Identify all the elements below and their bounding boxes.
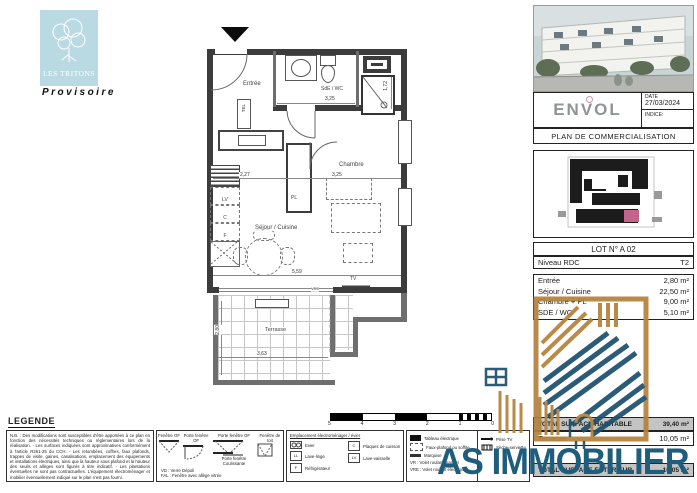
legend-notes-box: N.B. : Des modifications sont susceptibl…	[6, 430, 154, 482]
room-sejour: Séjour / Cuisine	[255, 225, 297, 231]
faux-plafond-icon	[410, 443, 423, 451]
room-chambre: Chambre	[339, 162, 364, 168]
terrace-wall-ext-h	[353, 317, 407, 322]
legend-windows-box: Fenêtre OF Porte fenêtre OF Porte fenêtr…	[156, 430, 284, 482]
terrace-wall-bottom	[213, 380, 335, 385]
terrace-wall-left	[213, 295, 218, 385]
tel-label: TEL	[241, 104, 246, 112]
highlighted-lot	[624, 210, 639, 222]
oven-block	[210, 165, 240, 187]
washbasin	[285, 55, 317, 81]
dimline-sde	[277, 103, 355, 104]
site-plan	[533, 150, 694, 238]
plaques-cuisson-icon: C	[348, 441, 360, 451]
les-tritons-logo: LES TRITONS	[40, 10, 98, 86]
wall-bottom-right	[333, 287, 407, 293]
terrace-door-tag	[255, 299, 289, 308]
lave-vaisselle-icon: LV	[348, 453, 360, 463]
dim-sde-d: 1,72	[382, 81, 390, 91]
cooktop-box: C	[210, 205, 240, 223]
building-photo	[533, 5, 694, 92]
evier-icon	[290, 441, 302, 449]
fridge-box: F	[210, 223, 240, 241]
date-label: DATE	[642, 93, 693, 100]
room-sde: SdE / WC	[321, 86, 343, 92]
dimline-sde-d	[391, 77, 392, 109]
scale-numbers: 54 32 10	[328, 421, 494, 427]
dimline-terrasse	[218, 357, 328, 358]
wall-right	[401, 49, 407, 293]
tableau-electrique-icon	[410, 435, 421, 441]
floor-plan: TEL LV C F PL TV VRE Entrée SdE / WC Cha…	[193, 25, 423, 423]
fenetre-de-toit-icon	[257, 443, 273, 459]
wardrobe-dashed	[326, 178, 372, 200]
kitchen-counter	[218, 130, 284, 151]
vre-label: VRE	[311, 286, 319, 292]
as-immobilier-logo	[480, 293, 652, 451]
envol-bird-icon	[586, 96, 593, 103]
room-entree: Entrée	[243, 81, 261, 87]
dimline-terrasse-d	[221, 301, 222, 375]
title-block: ENVOL DATE 27/03/2024 INDICE:	[533, 92, 694, 128]
marquise-icon	[410, 454, 421, 457]
terrace-wall-ext-v	[401, 293, 407, 322]
chair-right	[280, 247, 295, 265]
window-right-1	[398, 120, 412, 164]
wall-bottom-left	[207, 287, 219, 293]
legend-nb-text: N.B. : Des modifications sont susceptibl…	[7, 431, 153, 482]
terrace-wall-right	[330, 295, 335, 357]
as-immobilier-watermark-text: AS IMMOBILIER 7	[437, 441, 697, 483]
surface-row: Entrée2,80 m²	[534, 276, 693, 287]
furniture-dashed	[343, 243, 373, 263]
indice-label: INDICE:	[642, 110, 693, 120]
tv-label: TV	[350, 276, 356, 282]
dimline-mid	[213, 178, 401, 179]
lave-linge-icon: LL	[290, 451, 302, 461]
type-label: T2	[680, 258, 689, 267]
porte-fenetre-of-icon	[181, 443, 205, 461]
partition-bath-shower	[356, 51, 359, 107]
dim-terrasse-w: 3,63	[256, 351, 268, 357]
tree-icon	[40, 10, 98, 68]
closet-label: PL	[291, 195, 297, 201]
dim-sejour-w: 5,59	[291, 269, 303, 275]
partition-entree-bath	[273, 51, 276, 107]
dim-terrasse-d: 2,80	[214, 325, 222, 335]
dim-chambre-w: 3,25	[331, 172, 343, 178]
lot-number-row: LOT N° A 02	[533, 242, 694, 256]
dim-sde-w: 3,25	[324, 96, 336, 102]
date-value: 27/03/2024	[642, 100, 693, 110]
dimline-sejour	[213, 275, 401, 276]
table-dashed	[245, 238, 283, 276]
room-terrasse: Terrasse	[265, 327, 286, 333]
wc-bowl	[321, 65, 335, 83]
dishwasher-box: LV	[210, 187, 240, 205]
fenetre-of-icon	[157, 438, 181, 454]
level-row: Niveau RDC T2	[533, 256, 694, 269]
tel-box: TEL	[237, 99, 251, 129]
refrigerateur-icon: F	[290, 463, 302, 473]
terrace-wall-step-v	[353, 317, 358, 357]
estate-name: LES TRITONS	[40, 69, 98, 78]
developer-logo: ENVOL	[553, 100, 622, 120]
window-right-2	[398, 188, 412, 226]
scale-bar	[330, 413, 492, 421]
legend-appliances-box: Emplacement électroménager / évier Evier…	[286, 430, 404, 482]
legend-title: LEGENDE	[8, 416, 55, 428]
status-label: Provisoire	[42, 87, 116, 98]
entrance-door-gap	[215, 49, 247, 54]
terrace-tiles-2	[335, 295, 353, 350]
plan-title-bar: PLAN DE COMMERCIALISATION	[533, 128, 694, 144]
chair-left	[233, 247, 248, 265]
porte-fenetre-coulissante-icon	[211, 438, 245, 456]
tv-symbol	[342, 283, 370, 287]
technical-shaft	[363, 56, 391, 73]
level-label: Niveau RDC	[538, 258, 580, 267]
dim-entree-w: 2,27	[239, 172, 251, 178]
north-arrow-icon	[221, 27, 249, 42]
bed-dashed	[331, 203, 381, 233]
